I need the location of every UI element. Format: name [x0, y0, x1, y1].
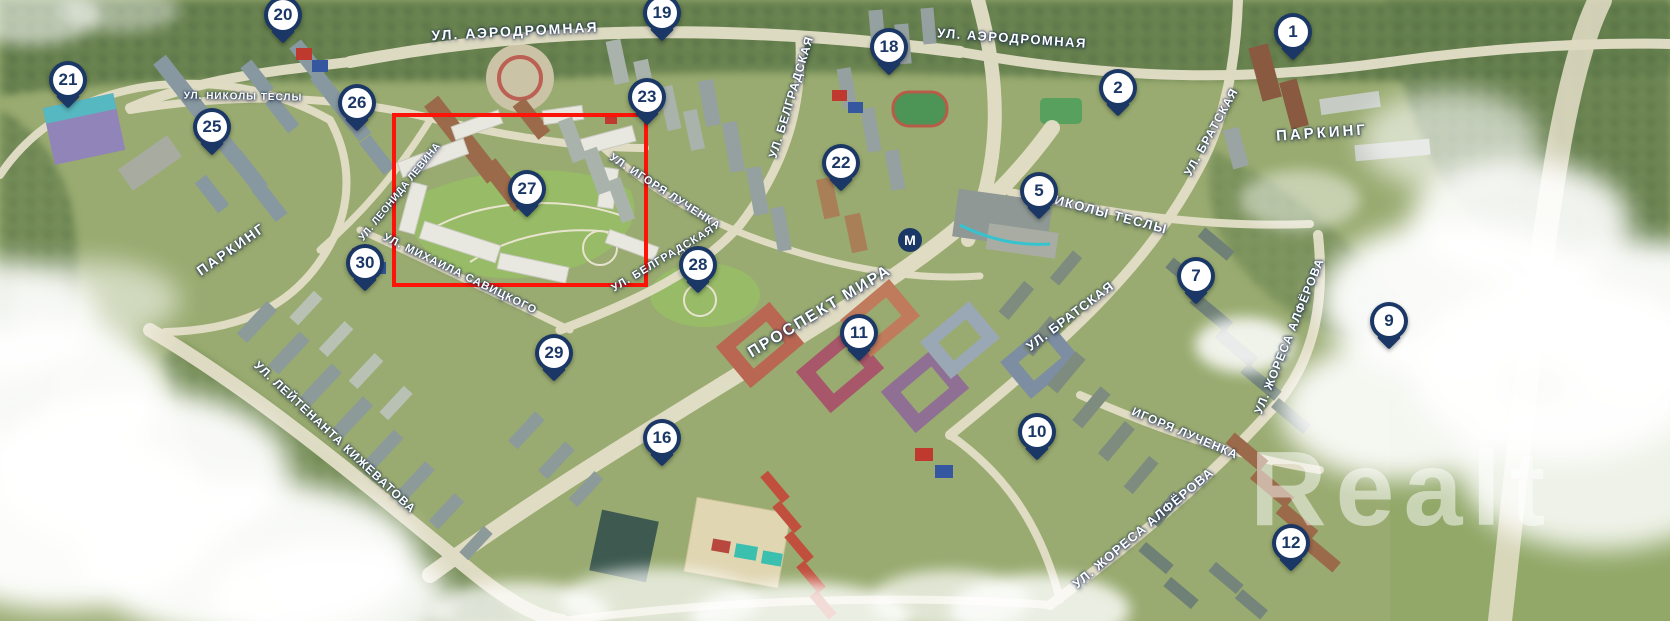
- pin-number: 18: [874, 32, 904, 62]
- pin-number: 1: [1278, 17, 1308, 47]
- pin-number: 20: [268, 0, 298, 30]
- pin-number: 16: [647, 423, 677, 453]
- map-pin-25[interactable]: 25: [193, 108, 231, 146]
- pin-number: 5: [1024, 176, 1054, 206]
- map-pin-28[interactable]: 28: [679, 246, 717, 284]
- pin-number: 29: [539, 338, 569, 368]
- map-pin-10[interactable]: 10: [1018, 413, 1056, 451]
- map-pin-26[interactable]: 26: [338, 84, 376, 122]
- pin-number: 10: [1022, 417, 1052, 447]
- pin-number: 2: [1103, 73, 1133, 103]
- map-pin-2[interactable]: 2: [1099, 69, 1137, 107]
- metro-icon: М: [898, 228, 922, 252]
- pin-number: 21: [53, 65, 83, 95]
- pin-number: 22: [826, 148, 856, 178]
- map-pin-7[interactable]: 7: [1177, 257, 1215, 295]
- street-label-2: УЛ. НИКОЛЫ ТЕСЛЫ: [184, 90, 303, 103]
- aerial-masterplan-map: УЛ. АЭРОДРОМНАЯУЛ. АЭРОДРОМНАЯУЛ. НИКОЛЫ…: [0, 0, 1670, 621]
- map-pin-11[interactable]: 11: [840, 314, 878, 352]
- map-pin-30[interactable]: 30: [346, 244, 384, 282]
- pin-number: 26: [342, 88, 372, 118]
- pin-number: 19: [647, 0, 677, 28]
- pin-number: 30: [350, 248, 380, 278]
- map-pin-21[interactable]: 21: [49, 61, 87, 99]
- map-pin-27[interactable]: 27: [508, 170, 546, 208]
- pin-number: 11: [844, 318, 874, 348]
- map-pin-1[interactable]: 1: [1274, 13, 1312, 51]
- pin-number: 23: [632, 82, 662, 112]
- map-pin-12[interactable]: 12: [1272, 524, 1310, 562]
- map-pin-23[interactable]: 23: [628, 78, 666, 116]
- pin-number: 25: [197, 112, 227, 142]
- pin-number: 9: [1374, 306, 1404, 336]
- map-pin-22[interactable]: 22: [822, 144, 860, 182]
- pin-number: 7: [1181, 261, 1211, 291]
- map-pin-5[interactable]: 5: [1020, 172, 1058, 210]
- pin-number: 28: [683, 250, 713, 280]
- map-pin-9[interactable]: 9: [1370, 302, 1408, 340]
- map-pin-18[interactable]: 18: [870, 28, 908, 66]
- map-pin-29[interactable]: 29: [535, 334, 573, 372]
- map-pin-16[interactable]: 16: [643, 419, 681, 457]
- pin-number: 12: [1276, 528, 1306, 558]
- pin-number: 27: [512, 174, 542, 204]
